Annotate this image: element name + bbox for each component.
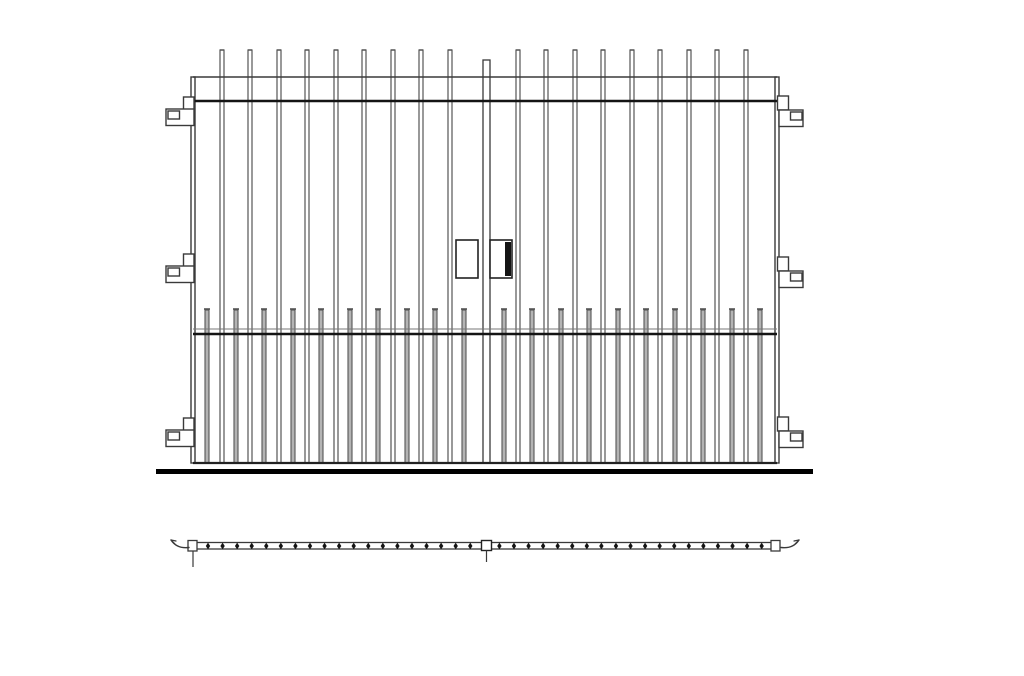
center-meeting-stile [483,60,490,463]
long-picket-bar [248,50,252,463]
long-picket-bar [630,50,634,463]
long-picket-bar [419,50,423,463]
long-picket-bar [544,50,548,463]
hinge-right-tab [778,257,789,271]
long-picket-bar [334,50,338,463]
hinge-left-notch [168,268,180,276]
hinge-left-notch [168,111,180,119]
hinge-right-tab [778,417,789,431]
hinge-right-tab [778,96,789,110]
plan-right-hook [781,540,799,548]
hinge-right-notch [791,112,803,120]
plan-right-end-cap [771,541,780,552]
long-picket-bar [744,50,748,463]
long-picket-bar [362,50,366,463]
lock-case-left [456,240,478,278]
long-picket-bar [516,50,520,463]
long-picket-bar [448,50,452,463]
long-picket-bar [220,50,224,463]
site-logo[interactable]: A CAD-BLOCK.COM [0,556,400,636]
page: A CAD-BLOCK.COM [0,0,1024,676]
hinge-right-notch [791,273,803,281]
ground-line [156,469,813,474]
long-picket-bar [391,50,395,463]
lock-dark-strip [505,242,511,276]
hinge-left-notch [168,432,180,440]
long-picket-bar [573,50,577,463]
plan-left-hook [171,540,189,548]
long-picket-bar [305,50,309,463]
long-picket-bar [601,50,605,463]
long-picket-bar [277,50,281,463]
hinge-right-notch [791,433,803,441]
long-picket-bar [687,50,691,463]
plan-lock-box [482,541,492,551]
plan-left-end-cap [188,541,197,552]
long-picket-bar [715,50,719,463]
long-picket-bar [658,50,662,463]
